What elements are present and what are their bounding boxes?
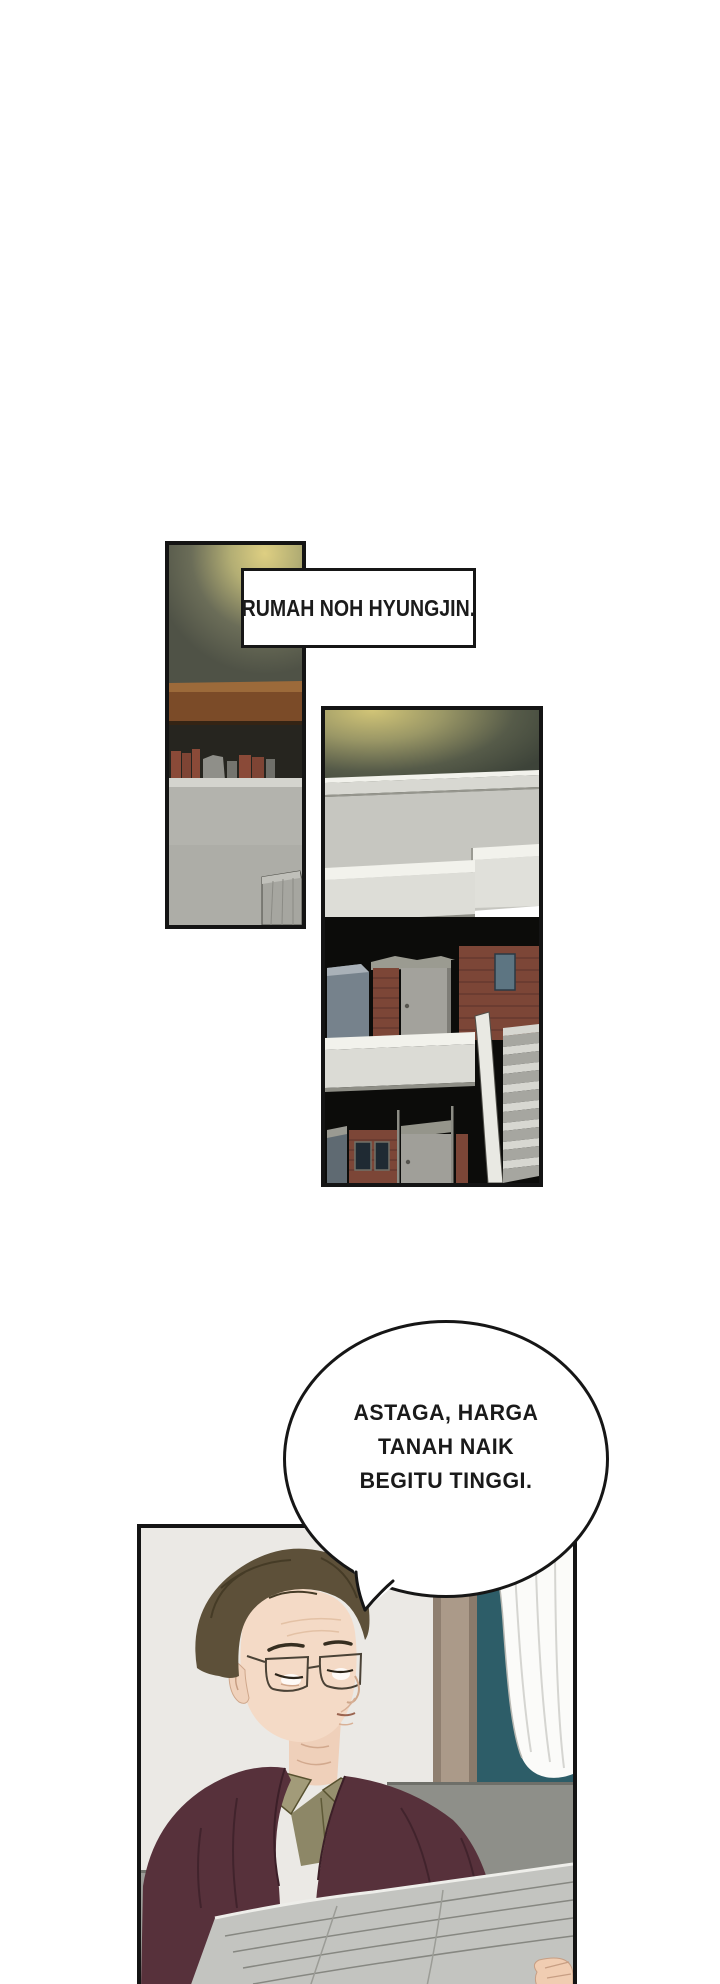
house-exterior-illustration xyxy=(325,710,539,1183)
speech-line: ASTAGA, HARGA xyxy=(288,1396,604,1430)
speech-line: TANAH NAIK xyxy=(288,1430,604,1464)
shelf-books xyxy=(169,725,302,780)
speech-bubble-text: ASTAGA, HARGA TANAH NAIK BEGITU TINGGI. xyxy=(283,1396,609,1498)
speech-line: BEGITU TINGGI. xyxy=(288,1464,604,1498)
caption-box: RUMAH NOH HYUNGJIN. xyxy=(241,568,476,648)
hand xyxy=(534,1958,573,1984)
upper-balcony xyxy=(325,860,475,926)
panel-house-exterior xyxy=(321,706,543,1187)
speech-bubble-tail xyxy=(340,1552,404,1616)
right-parapet xyxy=(471,844,539,908)
wooden-shelf xyxy=(169,681,302,725)
comic-page: RUMAH NOH HYUNGJIN. xyxy=(0,0,720,1984)
caption-text: RUMAH NOH HYUNGJIN. xyxy=(242,595,476,622)
chair-back xyxy=(262,871,302,925)
lower-balcony xyxy=(325,1032,475,1092)
lens-glint xyxy=(332,1668,350,1680)
